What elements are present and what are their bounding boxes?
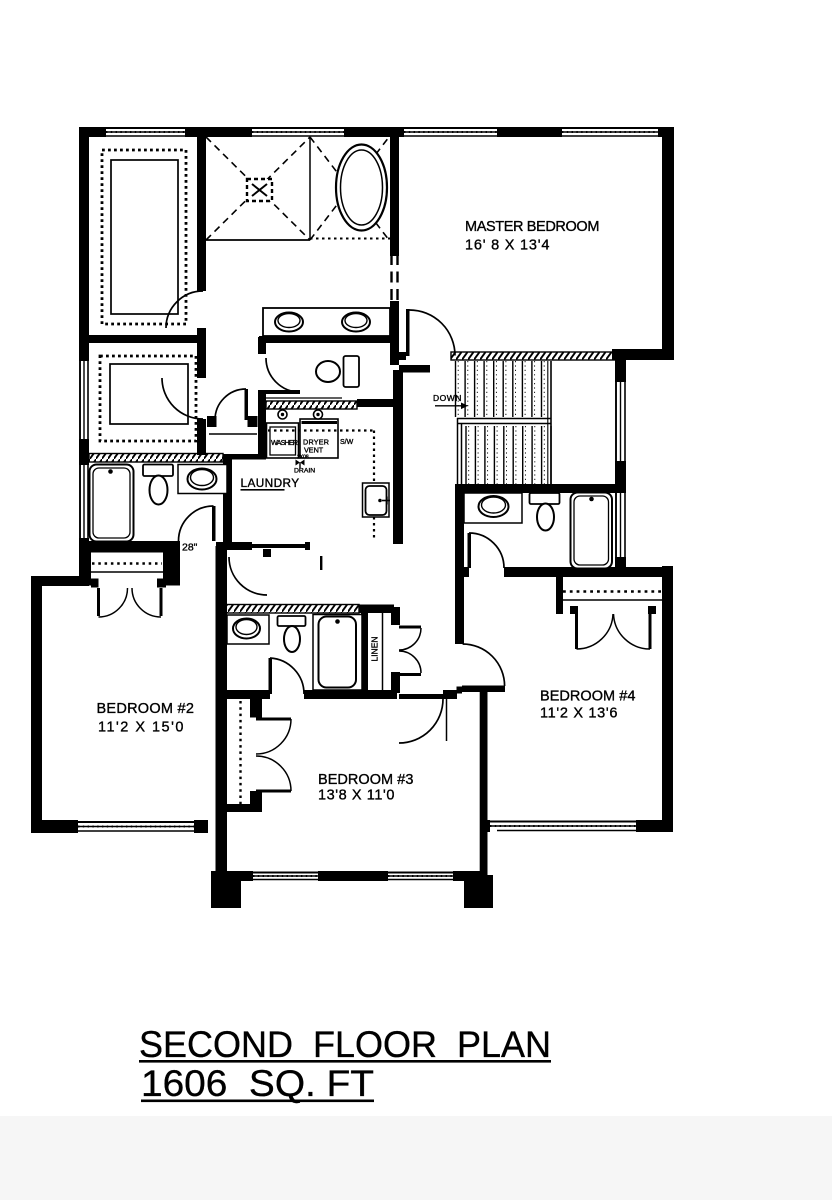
- svg-text:11'2 X 13'6: 11'2 X 13'6: [540, 706, 618, 722]
- svg-text:DOWN: DOWN: [433, 393, 462, 403]
- svg-text:LINEN: LINEN: [370, 636, 380, 661]
- svg-text:13'8 X 11'0: 13'8 X 11'0: [318, 788, 395, 804]
- svg-text:1606 SQ. FT: 1606 SQ. FT: [141, 1062, 374, 1104]
- svg-text:2X08: 2X08: [297, 455, 309, 461]
- svg-text:MASTER BEDROOM: MASTER BEDROOM: [465, 219, 600, 235]
- svg-text:DRAIN: DRAIN: [294, 468, 315, 475]
- svg-text:VENT: VENT: [304, 446, 324, 455]
- svg-text:S/W: S/W: [340, 439, 354, 446]
- svg-text:WASHER: WASHER: [271, 438, 298, 447]
- svg-text:16' 8 X 13'4: 16' 8 X 13'4: [465, 238, 550, 254]
- svg-text:BEDROOM #4: BEDROOM #4: [540, 689, 636, 705]
- svg-text:BEDROOM #3: BEDROOM #3: [318, 772, 414, 788]
- svg-text:28": 28": [182, 542, 198, 554]
- svg-text:11'2 X 15'0: 11'2 X 15'0: [98, 720, 184, 736]
- svg-text:SECOND FLOOR PLAN: SECOND FLOOR PLAN: [139, 1023, 551, 1065]
- svg-text:LAUNDRY: LAUNDRY: [241, 476, 300, 490]
- svg-text:BEDROOM #2: BEDROOM #2: [97, 701, 195, 717]
